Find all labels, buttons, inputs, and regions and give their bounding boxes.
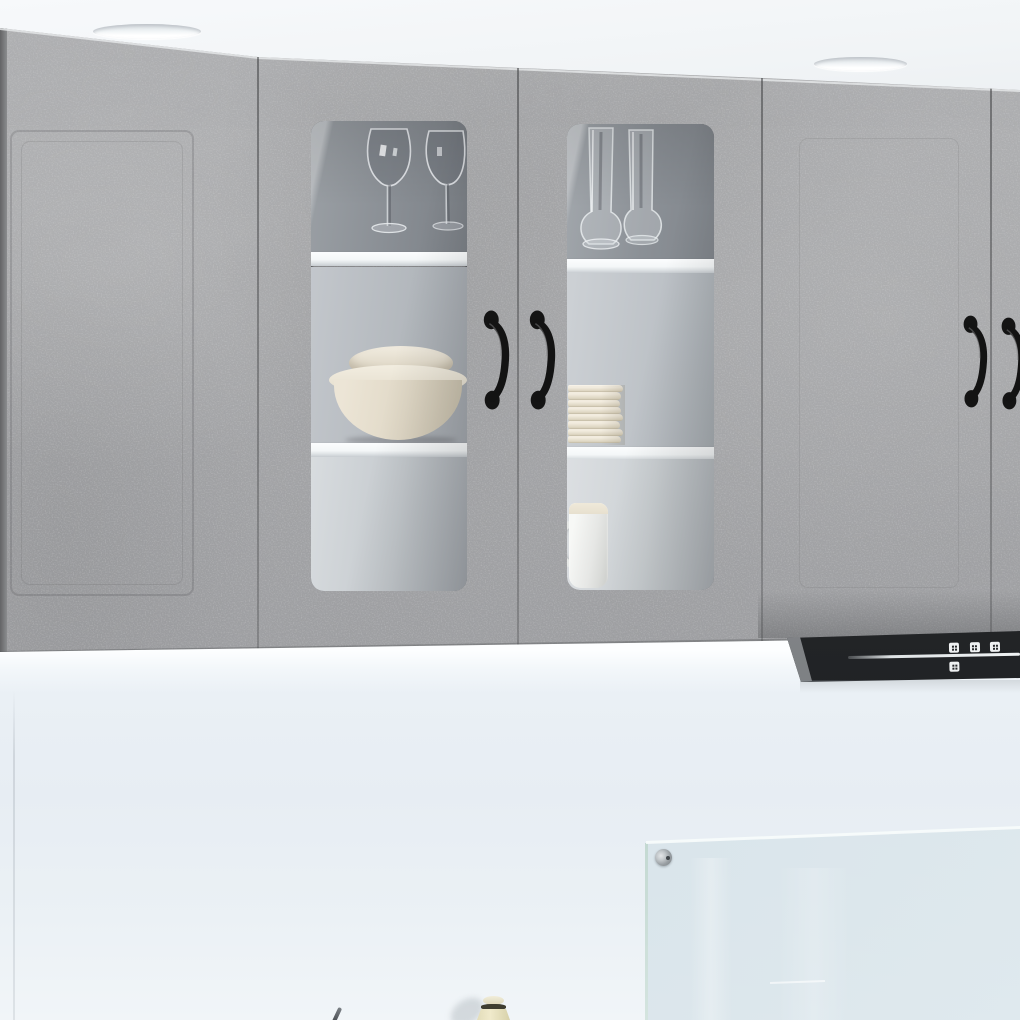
glass-reflection <box>311 121 467 591</box>
door-handle <box>481 303 509 417</box>
fixing-screw-dot <box>666 856 670 860</box>
door-handle <box>961 313 987 410</box>
splashback-reflection <box>778 868 850 1020</box>
hood-button <box>969 642 979 652</box>
splashback-left-edge <box>645 843 648 1020</box>
glass-reflection <box>567 124 714 590</box>
door-seam <box>517 68 519 650</box>
glass-door-window-2 <box>567 124 714 590</box>
glass-door-window-1 <box>311 121 467 591</box>
door-seam <box>257 57 259 653</box>
door-handle <box>527 303 555 417</box>
door-handle <box>999 315 1020 412</box>
door-seam <box>990 88 992 644</box>
shadow-above-hood <box>758 590 1020 638</box>
hood-buttons <box>949 641 1020 655</box>
wall-corner-line <box>13 690 15 1020</box>
kitchen-photo <box>0 0 1020 1020</box>
wall-cabinet-row <box>0 0 1020 700</box>
bottle <box>477 1009 510 1020</box>
hood-shadow <box>800 680 1020 693</box>
right-door-frame <box>799 138 959 588</box>
left-door-frame-inner <box>21 141 183 585</box>
splashback-fixing-disc <box>655 849 672 866</box>
hood-button <box>990 642 1000 652</box>
hood-button <box>949 662 959 672</box>
splashback-reflection <box>690 858 732 1020</box>
recessed-light-right <box>814 57 907 71</box>
recessed-light-left <box>93 24 201 39</box>
hood-button <box>949 643 959 653</box>
cabinet-left-edge <box>0 28 7 653</box>
door-seam <box>761 78 763 646</box>
